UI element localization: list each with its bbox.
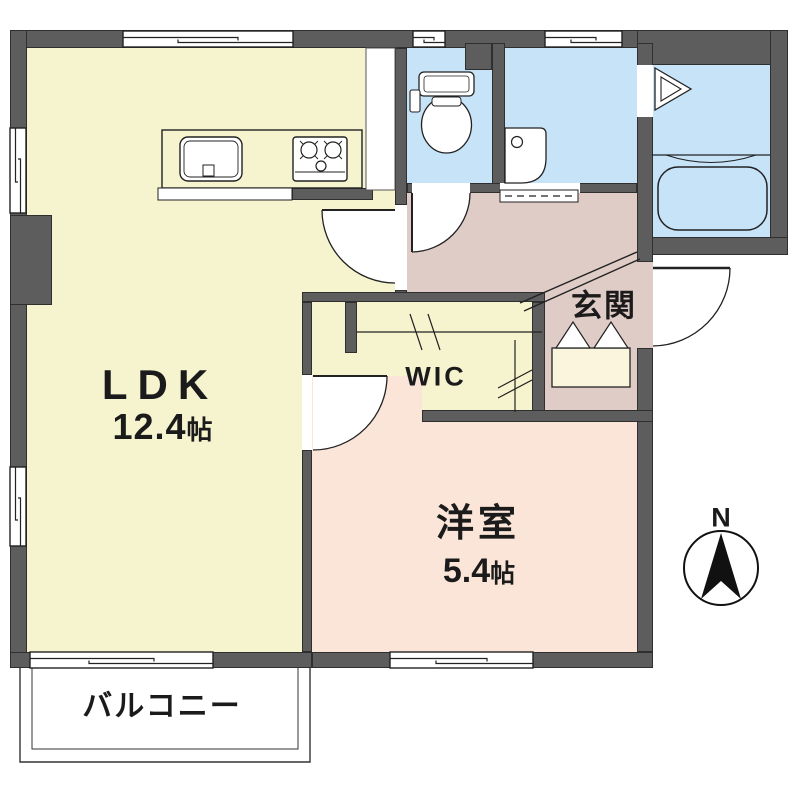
wall-wet-bottom bbox=[407, 183, 637, 193]
wall-wic-right bbox=[532, 302, 545, 422]
wall-right-bath bbox=[770, 30, 788, 255]
compass-icon bbox=[684, 531, 758, 605]
wall-bottom-ldk bbox=[10, 652, 312, 668]
washroom-floor bbox=[505, 47, 637, 183]
wall-ldk-wic bbox=[302, 302, 312, 375]
entrance-door bbox=[653, 268, 730, 346]
ldk-label: LDK bbox=[102, 364, 218, 406]
wall-toilet-washroom bbox=[492, 43, 505, 193]
wall-top bbox=[10, 30, 640, 48]
wic-label: WIC bbox=[405, 364, 466, 391]
wall-wic-top bbox=[302, 292, 545, 302]
wall-left bbox=[10, 30, 27, 668]
wall-toilet-notch bbox=[465, 43, 492, 70]
western-room-area-value: 5.4 bbox=[443, 552, 490, 590]
wall-right-lower bbox=[637, 348, 653, 652]
western-room-area-label: 5.4帖 bbox=[443, 554, 515, 588]
wall-wic-bottom bbox=[422, 410, 653, 422]
wall-left-pillar bbox=[10, 215, 52, 305]
bathroom-floor bbox=[652, 65, 770, 237]
wall-top-bath bbox=[637, 30, 788, 65]
compass-north-label: N bbox=[711, 505, 731, 532]
western-room-label: 洋室 bbox=[436, 505, 520, 543]
wall-ldk-hall-upper bbox=[395, 48, 407, 205]
entrance-label: 玄関 bbox=[571, 291, 637, 322]
wall-right-mid bbox=[637, 43, 653, 262]
balcony-label: バルコニー bbox=[82, 692, 241, 722]
wall-counter-base bbox=[292, 188, 373, 200]
wall-ldk-western bbox=[302, 450, 312, 652]
western-room-area-unit: 帖 bbox=[490, 560, 515, 588]
wall-bottom-western bbox=[312, 652, 653, 668]
floor-plan: LDK 12.4帖 洋室 5.4帖 WIC 玄関 バルコニー N bbox=[0, 0, 800, 800]
entrance-floor bbox=[637, 262, 653, 348]
wall-wic-stub bbox=[345, 302, 357, 353]
wall-bath-bottom bbox=[637, 237, 788, 255]
ldk-area-value: 12.4 bbox=[112, 406, 186, 447]
hallway-floor bbox=[407, 193, 637, 302]
ldk-area-unit: 帖 bbox=[187, 415, 214, 445]
ldk-area-label: 12.4帖 bbox=[112, 409, 213, 445]
ldk-floor bbox=[27, 48, 302, 652]
